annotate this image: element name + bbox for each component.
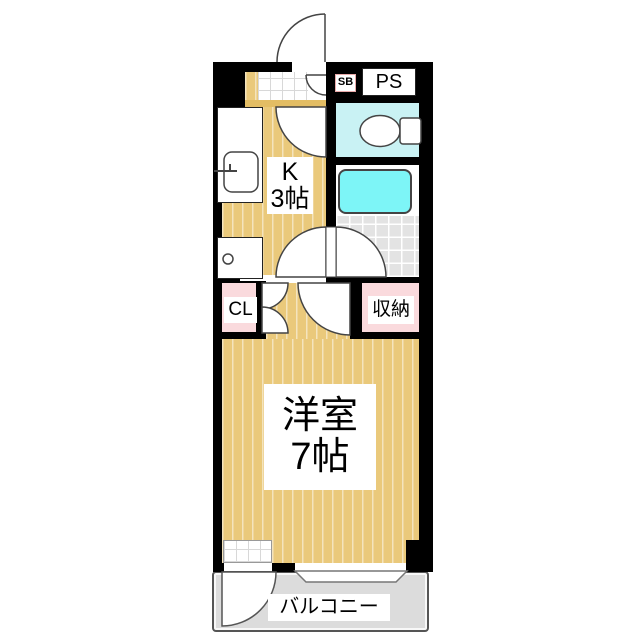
storage-text: 収納	[372, 300, 410, 321]
main-room-size: 7帖	[290, 437, 349, 478]
kitchen-size: 3帖	[271, 186, 310, 213]
balcony-label: バルコニー	[268, 594, 390, 621]
pipe-space-label: PS	[363, 70, 415, 95]
bath-door-leaves	[326, 227, 336, 277]
shoe-box-text: SB	[338, 77, 353, 89]
entrance-step	[245, 100, 326, 107]
kitchen-label: K 3帖	[267, 157, 313, 214]
closet-text: CL	[228, 300, 252, 321]
hallway-floor	[245, 72, 258, 103]
washer-pan	[217, 237, 263, 279]
wall	[336, 157, 419, 165]
wall	[350, 333, 433, 339]
room-entry-floor	[266, 283, 350, 339]
floor-plan: PS SB K 3帖 CL 収納 洋室 7帖 バルコニー	[0, 0, 640, 640]
balcony-step-tiles	[223, 540, 272, 563]
main-room-name: 洋室	[282, 396, 358, 437]
wall	[272, 563, 295, 572]
wall	[245, 62, 292, 72]
entrance-genkan-tiles	[258, 72, 308, 103]
wall	[326, 103, 336, 229]
entrance-door-swing-arc	[277, 14, 325, 62]
pipe-space-text: PS	[376, 72, 403, 94]
wall	[350, 277, 362, 339]
storage-label: 収納	[368, 296, 414, 324]
wall	[213, 563, 224, 572]
wall	[419, 62, 433, 572]
wall	[406, 540, 433, 572]
kitchen-name: K	[282, 159, 299, 186]
balcony-text: バルコニー	[279, 597, 379, 619]
bathroom-tile-floor	[336, 216, 419, 277]
wall	[326, 277, 433, 283]
toilet-room-floor	[336, 103, 419, 157]
wall	[213, 333, 266, 339]
main-room-label: 洋室 7帖	[264, 384, 376, 490]
closet-label: CL	[224, 297, 257, 323]
kitchen-counter	[217, 107, 263, 203]
shoe-box-label: SB	[335, 74, 356, 92]
wall	[256, 281, 266, 334]
